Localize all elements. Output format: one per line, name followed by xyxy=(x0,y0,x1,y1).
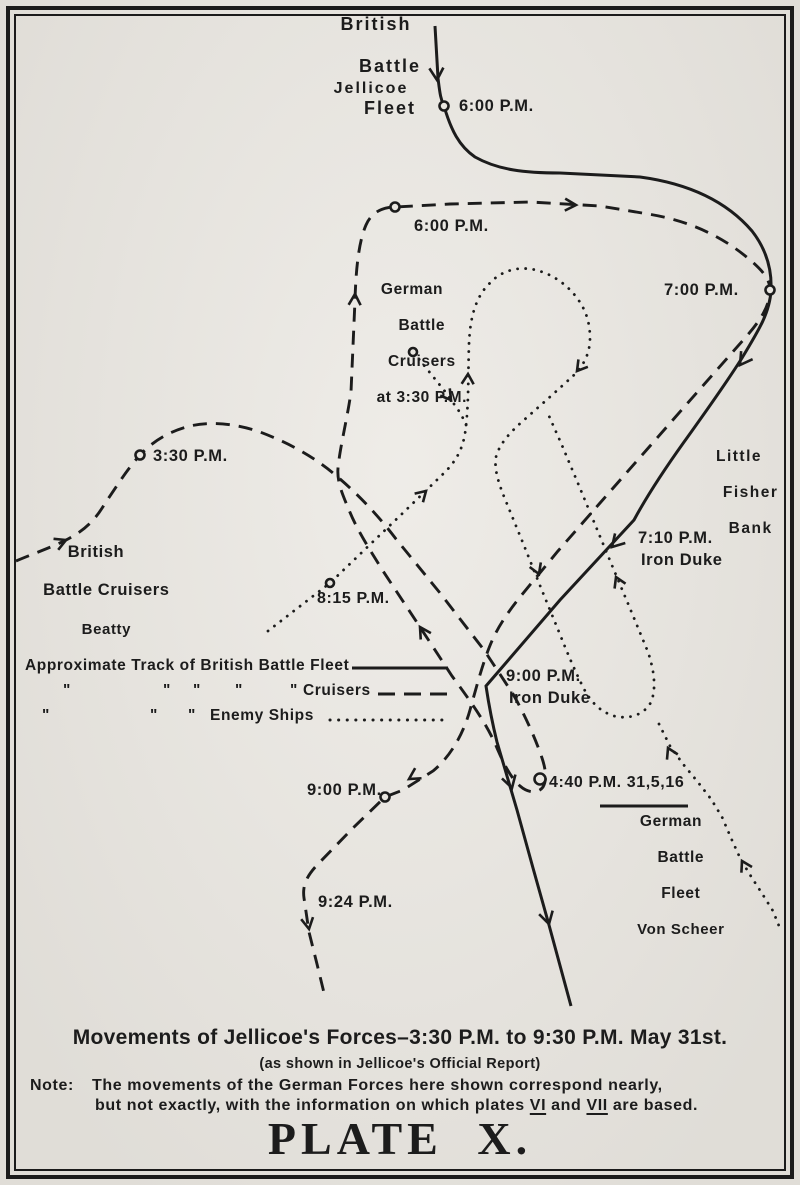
label-line: Fleet xyxy=(661,885,700,902)
label-line: Battle xyxy=(359,56,421,76)
ditto-mark: " xyxy=(150,707,158,725)
plate-vii-ref: VII xyxy=(586,1097,607,1114)
plate-number-title: PLATE X. xyxy=(268,1112,532,1165)
arrowhead-icon xyxy=(663,745,678,759)
label-line: Battle Cruisers xyxy=(43,581,169,599)
little-fisher-bank-label: Little Fisher Bank xyxy=(700,448,779,538)
label-line: Fisher xyxy=(723,484,779,501)
label-line: Beatty xyxy=(82,621,131,638)
label-line: Little xyxy=(716,448,762,465)
label-line: Battle xyxy=(398,317,445,334)
time-710-ship: Iron Duke xyxy=(641,551,723,570)
time-900-cruisers: 9:00 P.M. xyxy=(307,781,382,800)
note-line1: The movements of the German Forces here … xyxy=(92,1077,663,1096)
time-900-fleet: 9:00 P.M. xyxy=(506,667,581,686)
german-battle-fleet-label: German Battle Fleet Von Scheer xyxy=(617,813,724,939)
jellicoe-label: Jellicoe xyxy=(334,80,409,99)
time-330: 3:30 P.M. xyxy=(153,447,228,466)
label-line: British xyxy=(340,14,411,34)
arrowhead-icon xyxy=(415,487,431,503)
time-600-fleet: 6:00 P.M. xyxy=(459,97,534,116)
plate-vi-ref: VI xyxy=(530,1097,546,1114)
time-924: 9:24 P.M. xyxy=(318,893,393,912)
german-battle-cruisers-label: German Battle Cruisers at 3:30 P.M. xyxy=(357,281,467,407)
position-marker xyxy=(326,579,334,587)
ditto-mark: " xyxy=(42,707,50,725)
plate-x-map: British Battle Fleet Jellicoe 6:00 P.M. … xyxy=(0,0,800,1185)
ditto-mark: " xyxy=(63,682,71,700)
position-marker xyxy=(440,102,449,111)
note-line2-post: are based. xyxy=(608,1097,698,1114)
time-710: 7:10 P.M. xyxy=(638,529,713,548)
time-700: 7:00 P.M. xyxy=(664,281,739,300)
map-caption-title: Movements of Jellicoe's Forces–3:30 P.M.… xyxy=(73,1026,728,1050)
label-line: British xyxy=(68,543,124,561)
legend-line3-label: Enemy Ships xyxy=(210,707,314,725)
time-440: 4:40 P.M. 31,5,16 xyxy=(549,774,684,793)
arrowhead-icon xyxy=(607,533,625,551)
position-marker xyxy=(381,793,390,802)
time-815: 8:15 P.M. xyxy=(317,590,390,609)
arrowhead-icon xyxy=(737,858,752,872)
british-battle-cruisers-label: British Battle Cruisers Beatty xyxy=(22,543,169,639)
ditto-mark: " xyxy=(290,682,298,700)
label-line: Bank xyxy=(729,520,773,537)
ditto-mark: " xyxy=(188,707,196,725)
ditto-mark: " xyxy=(235,682,243,700)
position-marker xyxy=(136,451,145,460)
note-line2-and: and xyxy=(546,1097,586,1114)
position-marker xyxy=(535,774,546,785)
position-marker xyxy=(391,203,400,212)
time-600-cruisers: 6:00 P.M. xyxy=(414,217,489,236)
label-line: Fleet xyxy=(364,98,416,118)
legend-line1-label: Approximate Track of British Battle Flee… xyxy=(25,657,349,675)
time-900-ship: Iron Duke xyxy=(509,689,591,708)
legend-line2-label: Cruisers xyxy=(303,682,371,700)
arrowhead-icon xyxy=(572,359,588,374)
british-battle-fleet-label: British Battle Fleet xyxy=(331,14,421,118)
label-line: German xyxy=(640,813,702,830)
label-line: Von Scheer xyxy=(637,921,724,938)
map-caption-subtitle: (as shown in Jellicoe's Official Report) xyxy=(259,1056,540,1073)
ditto-mark: " xyxy=(163,682,171,700)
note-label: Note: xyxy=(30,1077,74,1096)
position-marker xyxy=(766,286,775,295)
label-line: at 3:30 P.M. xyxy=(377,389,467,406)
label-line: Cruisers xyxy=(388,353,456,370)
label-line: Battle xyxy=(657,849,704,866)
label-line: German xyxy=(381,281,443,298)
ditto-mark: " xyxy=(193,682,201,700)
